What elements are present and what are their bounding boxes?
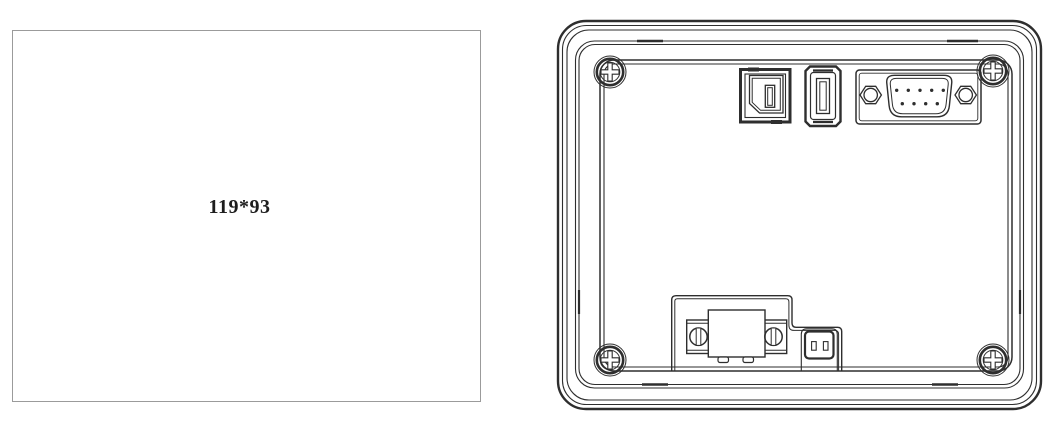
- cutout-dimensions-label: 119*93: [209, 196, 271, 219]
- drawing-canvas: 119*93: [0, 0, 1059, 421]
- terminal-tab-right: [743, 357, 754, 363]
- usb-a-port: [806, 67, 841, 127]
- device-case-outline: [558, 21, 1041, 409]
- case-parting-marks: [579, 41, 1020, 385]
- power-connector: [801, 329, 837, 371]
- terminal-screw-left: [690, 328, 707, 345]
- panel-cutout-outline: 119*93: [12, 30, 481, 402]
- device-rear-view: [554, 12, 1046, 414]
- db9-standoff-right: [955, 86, 976, 103]
- db9-standoff-left: [860, 86, 881, 103]
- db9-pins: [895, 89, 945, 106]
- terminal-screw-right: [765, 328, 782, 345]
- usb-b-port: [741, 70, 791, 123]
- db9-serial-port: [856, 70, 981, 124]
- terminal-tab-left: [718, 357, 729, 363]
